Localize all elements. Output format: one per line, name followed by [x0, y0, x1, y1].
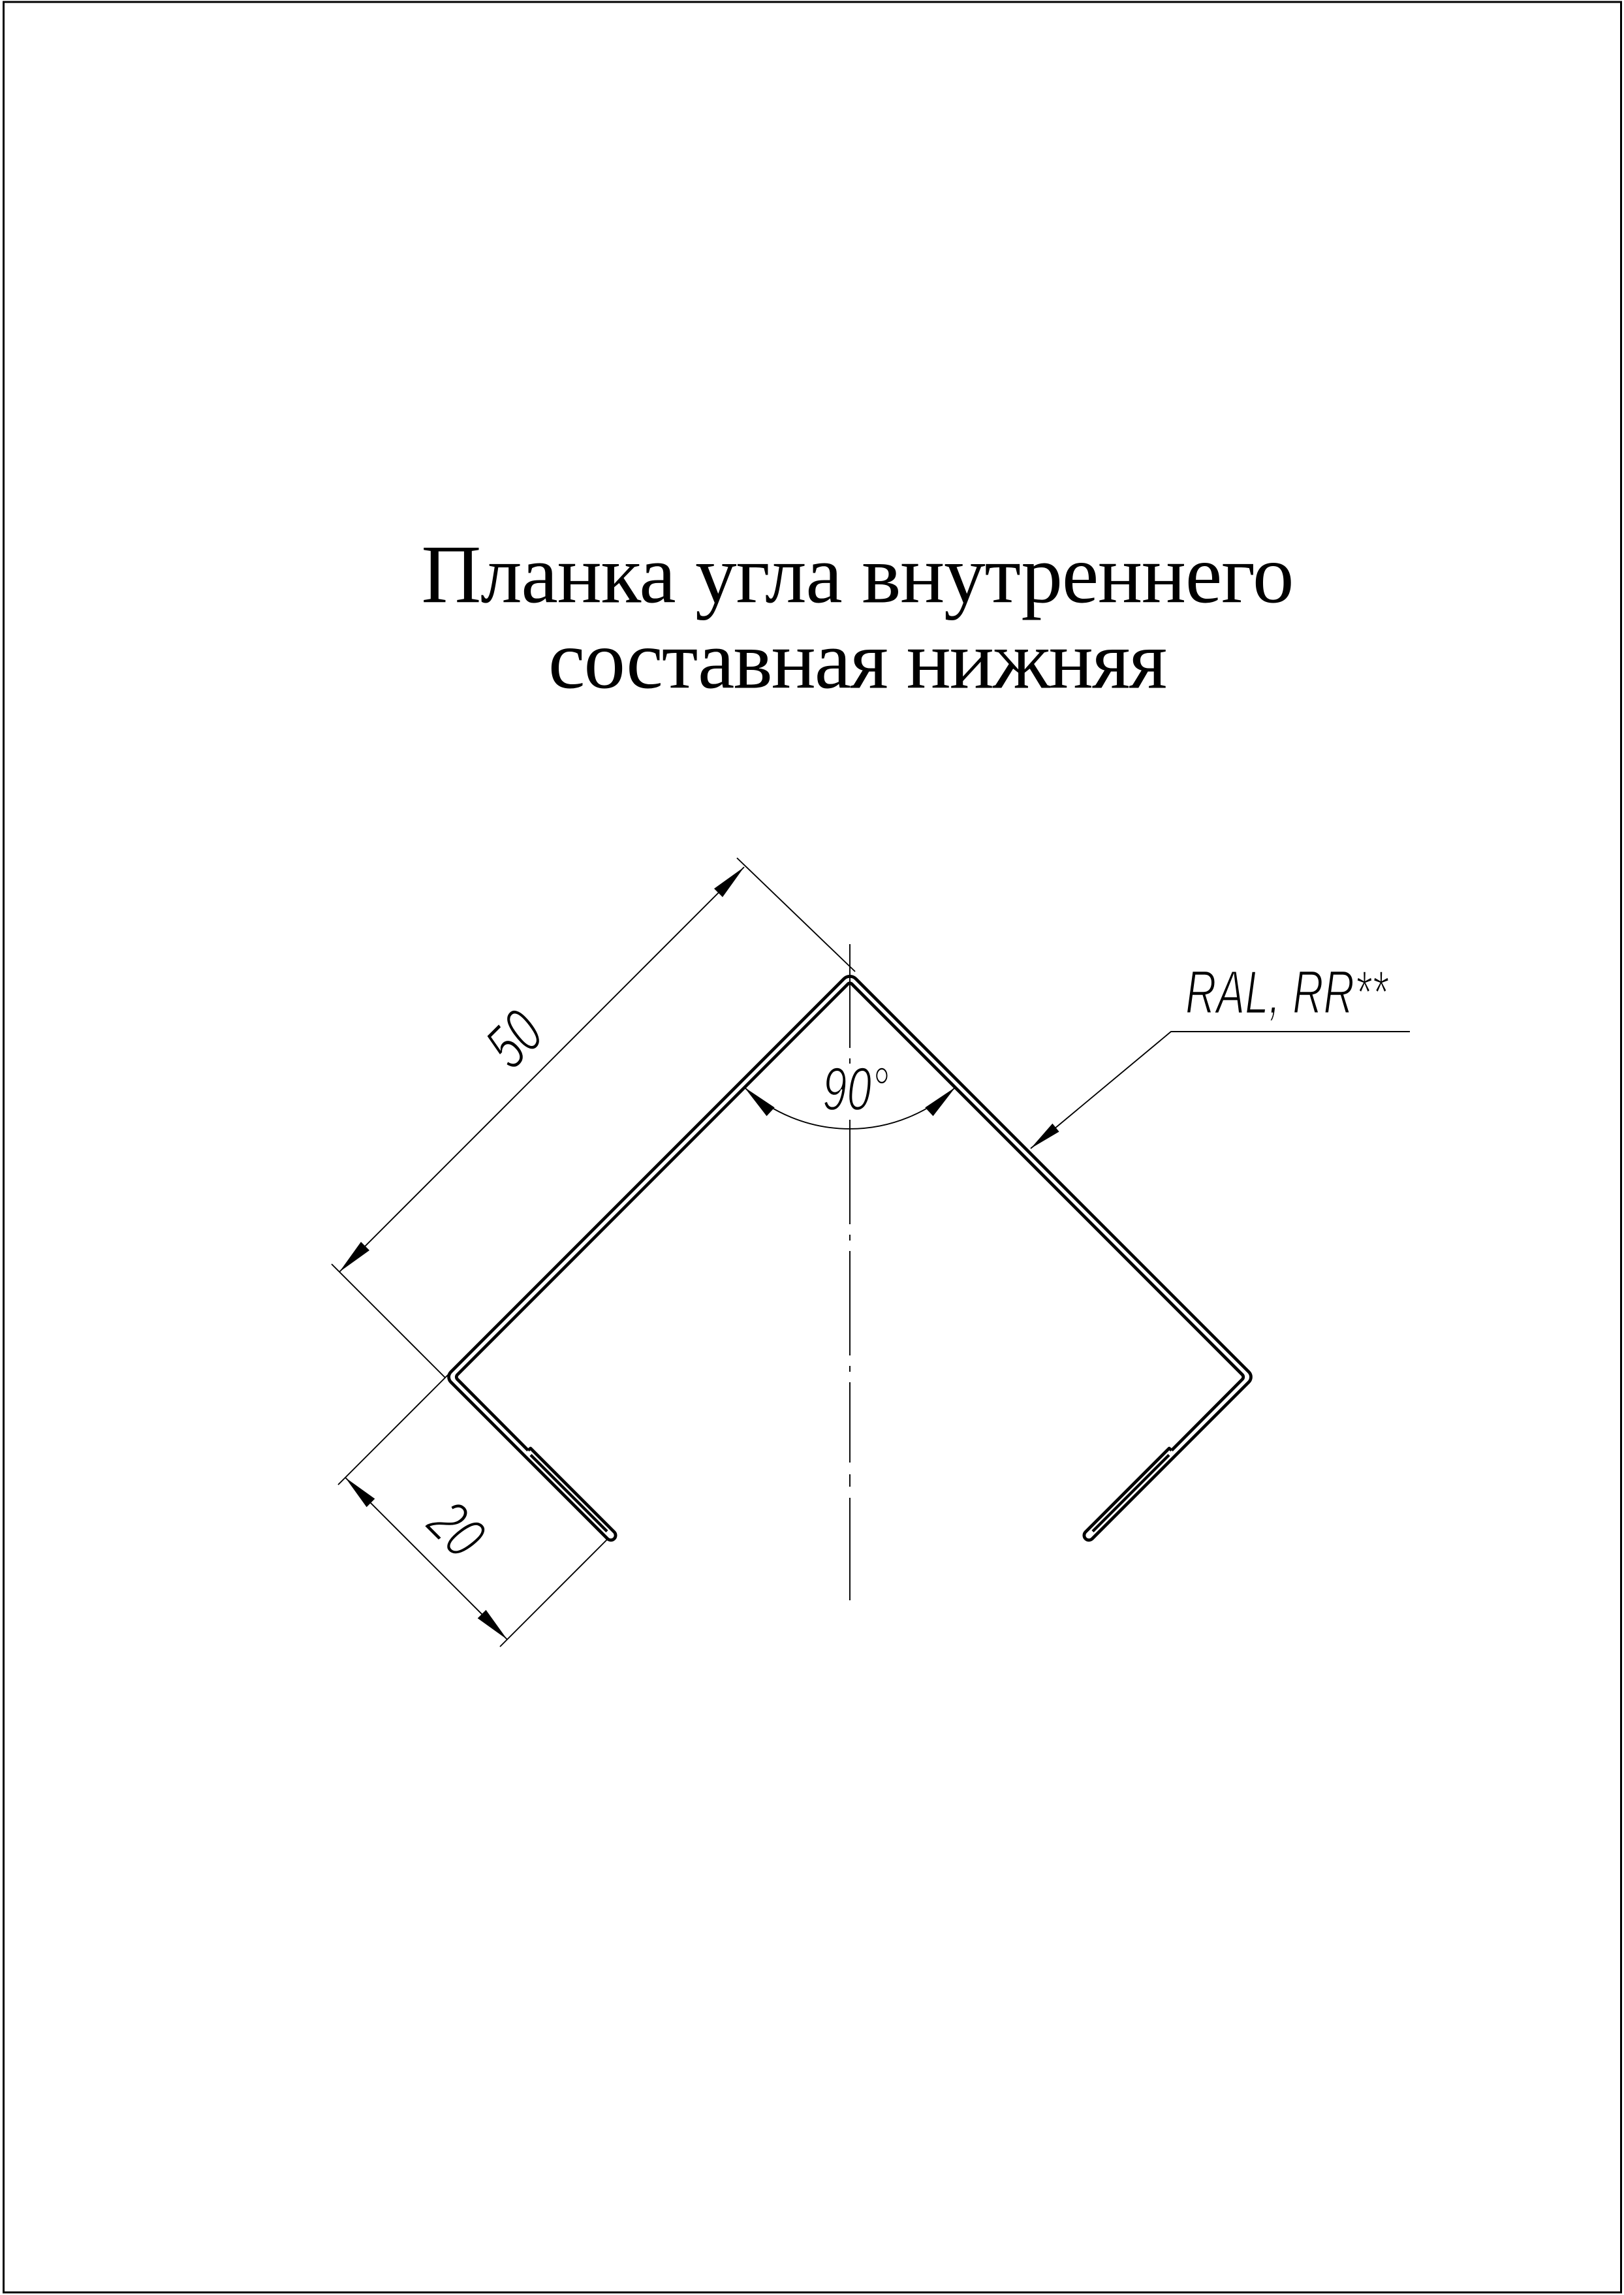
- svg-text:Планка угла внутреннего: Планка угла внутреннего: [422, 530, 1294, 621]
- svg-text:90°: 90°: [822, 1055, 889, 1124]
- svg-text:RAL, RR**: RAL, RR**: [1185, 959, 1389, 1027]
- svg-text:составная нижняя: составная нижняя: [548, 615, 1167, 706]
